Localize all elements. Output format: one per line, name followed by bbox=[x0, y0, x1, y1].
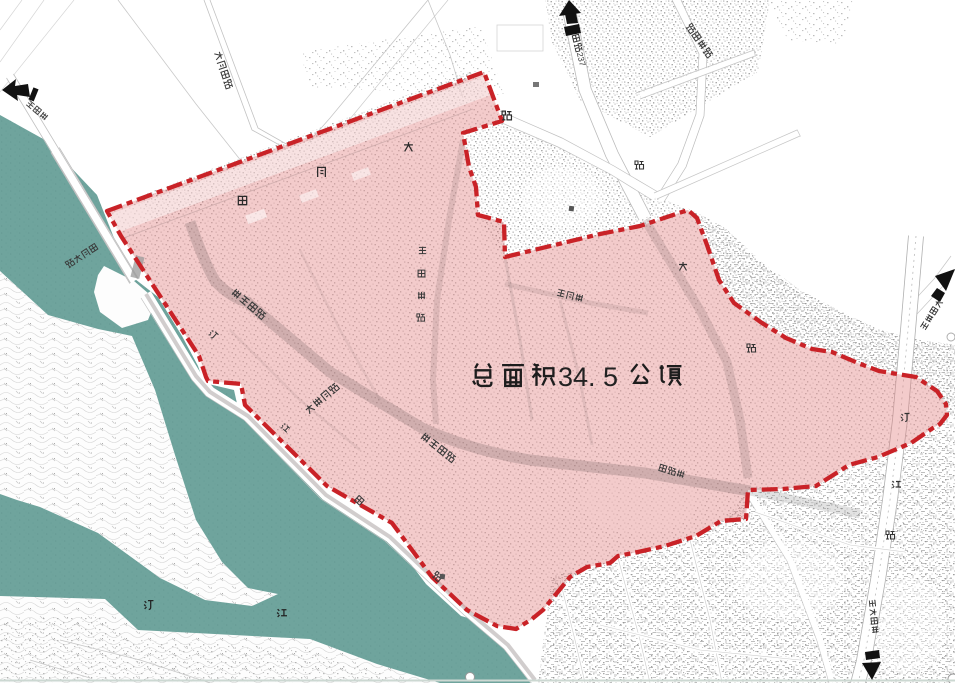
svg-text:34. 5: 34. 5 bbox=[558, 362, 618, 392]
